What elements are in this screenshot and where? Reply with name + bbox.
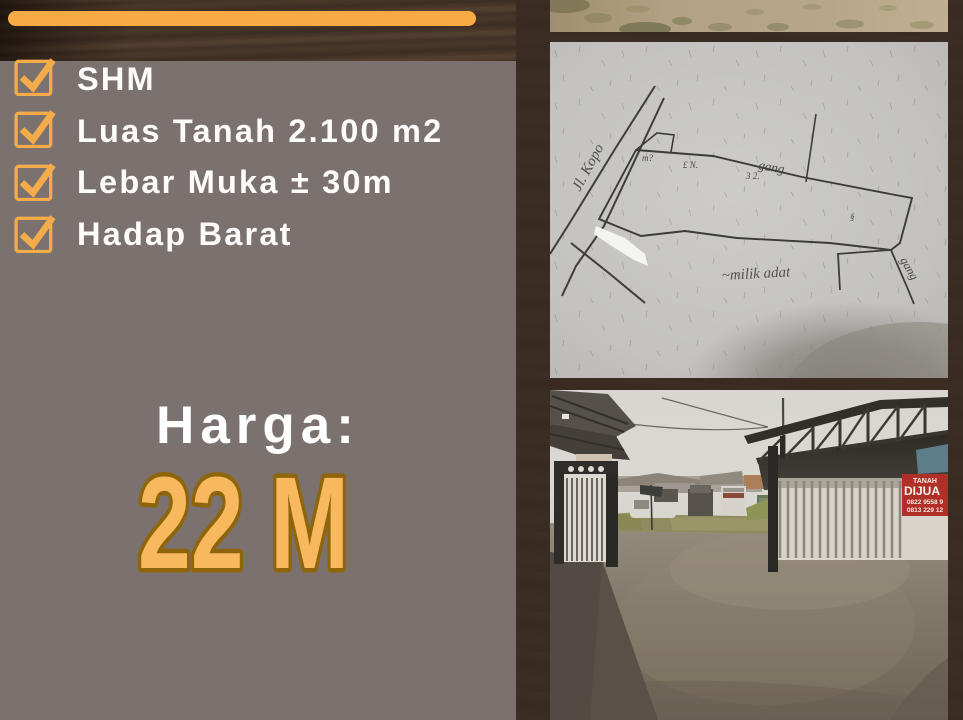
svg-text:m?: m? xyxy=(642,153,653,163)
svg-text:0822 9558 9: 0822 9558 9 xyxy=(907,499,944,506)
svg-text:0813 229 12: 0813 229 12 xyxy=(907,507,944,514)
svg-text:DIJUA: DIJUA xyxy=(904,484,940,498)
svg-text:§: § xyxy=(850,212,855,222)
svg-text:3 2.: 3 2. xyxy=(745,171,760,181)
svg-text:22 M: 22 M xyxy=(138,450,349,585)
svg-text:£ N.: £ N. xyxy=(683,160,698,170)
